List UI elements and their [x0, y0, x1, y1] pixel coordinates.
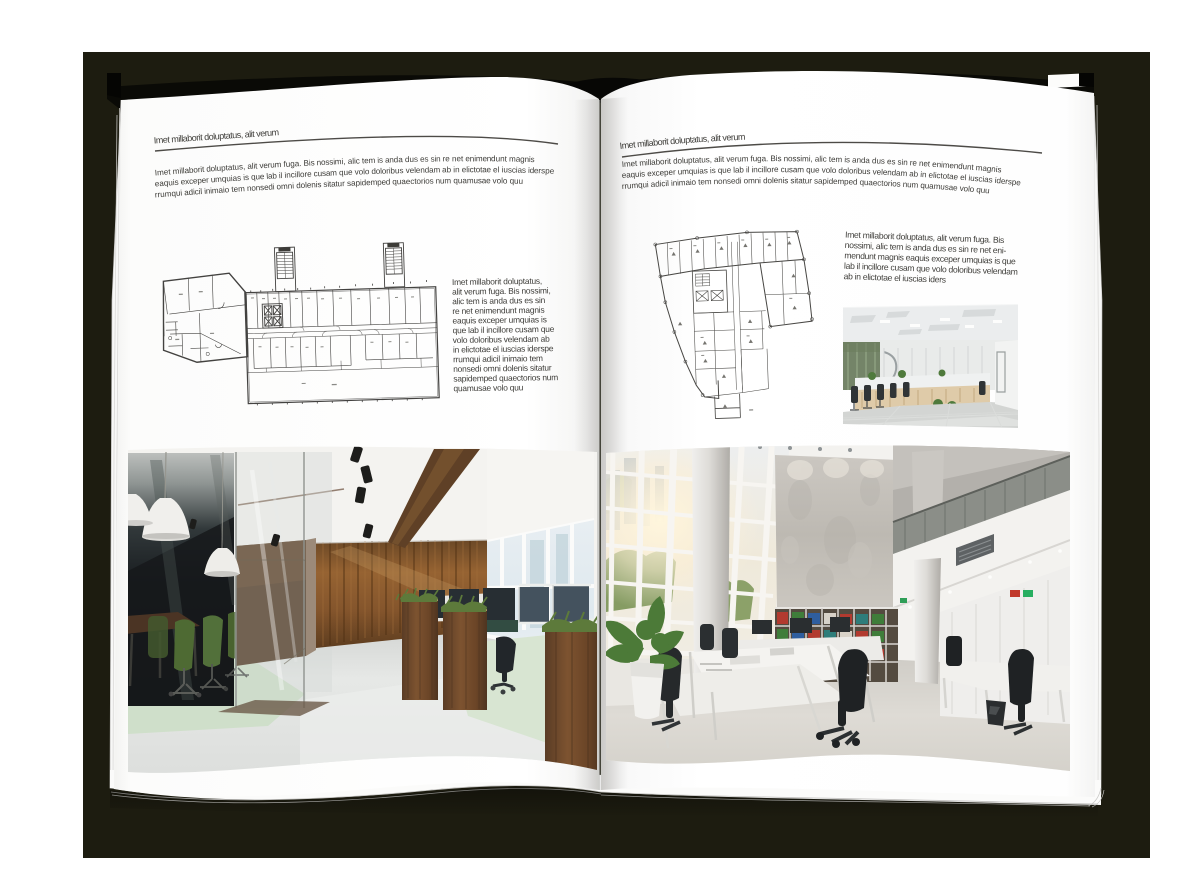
svg-text:quamusae volo quu: quamusae volo quu: [453, 382, 523, 393]
